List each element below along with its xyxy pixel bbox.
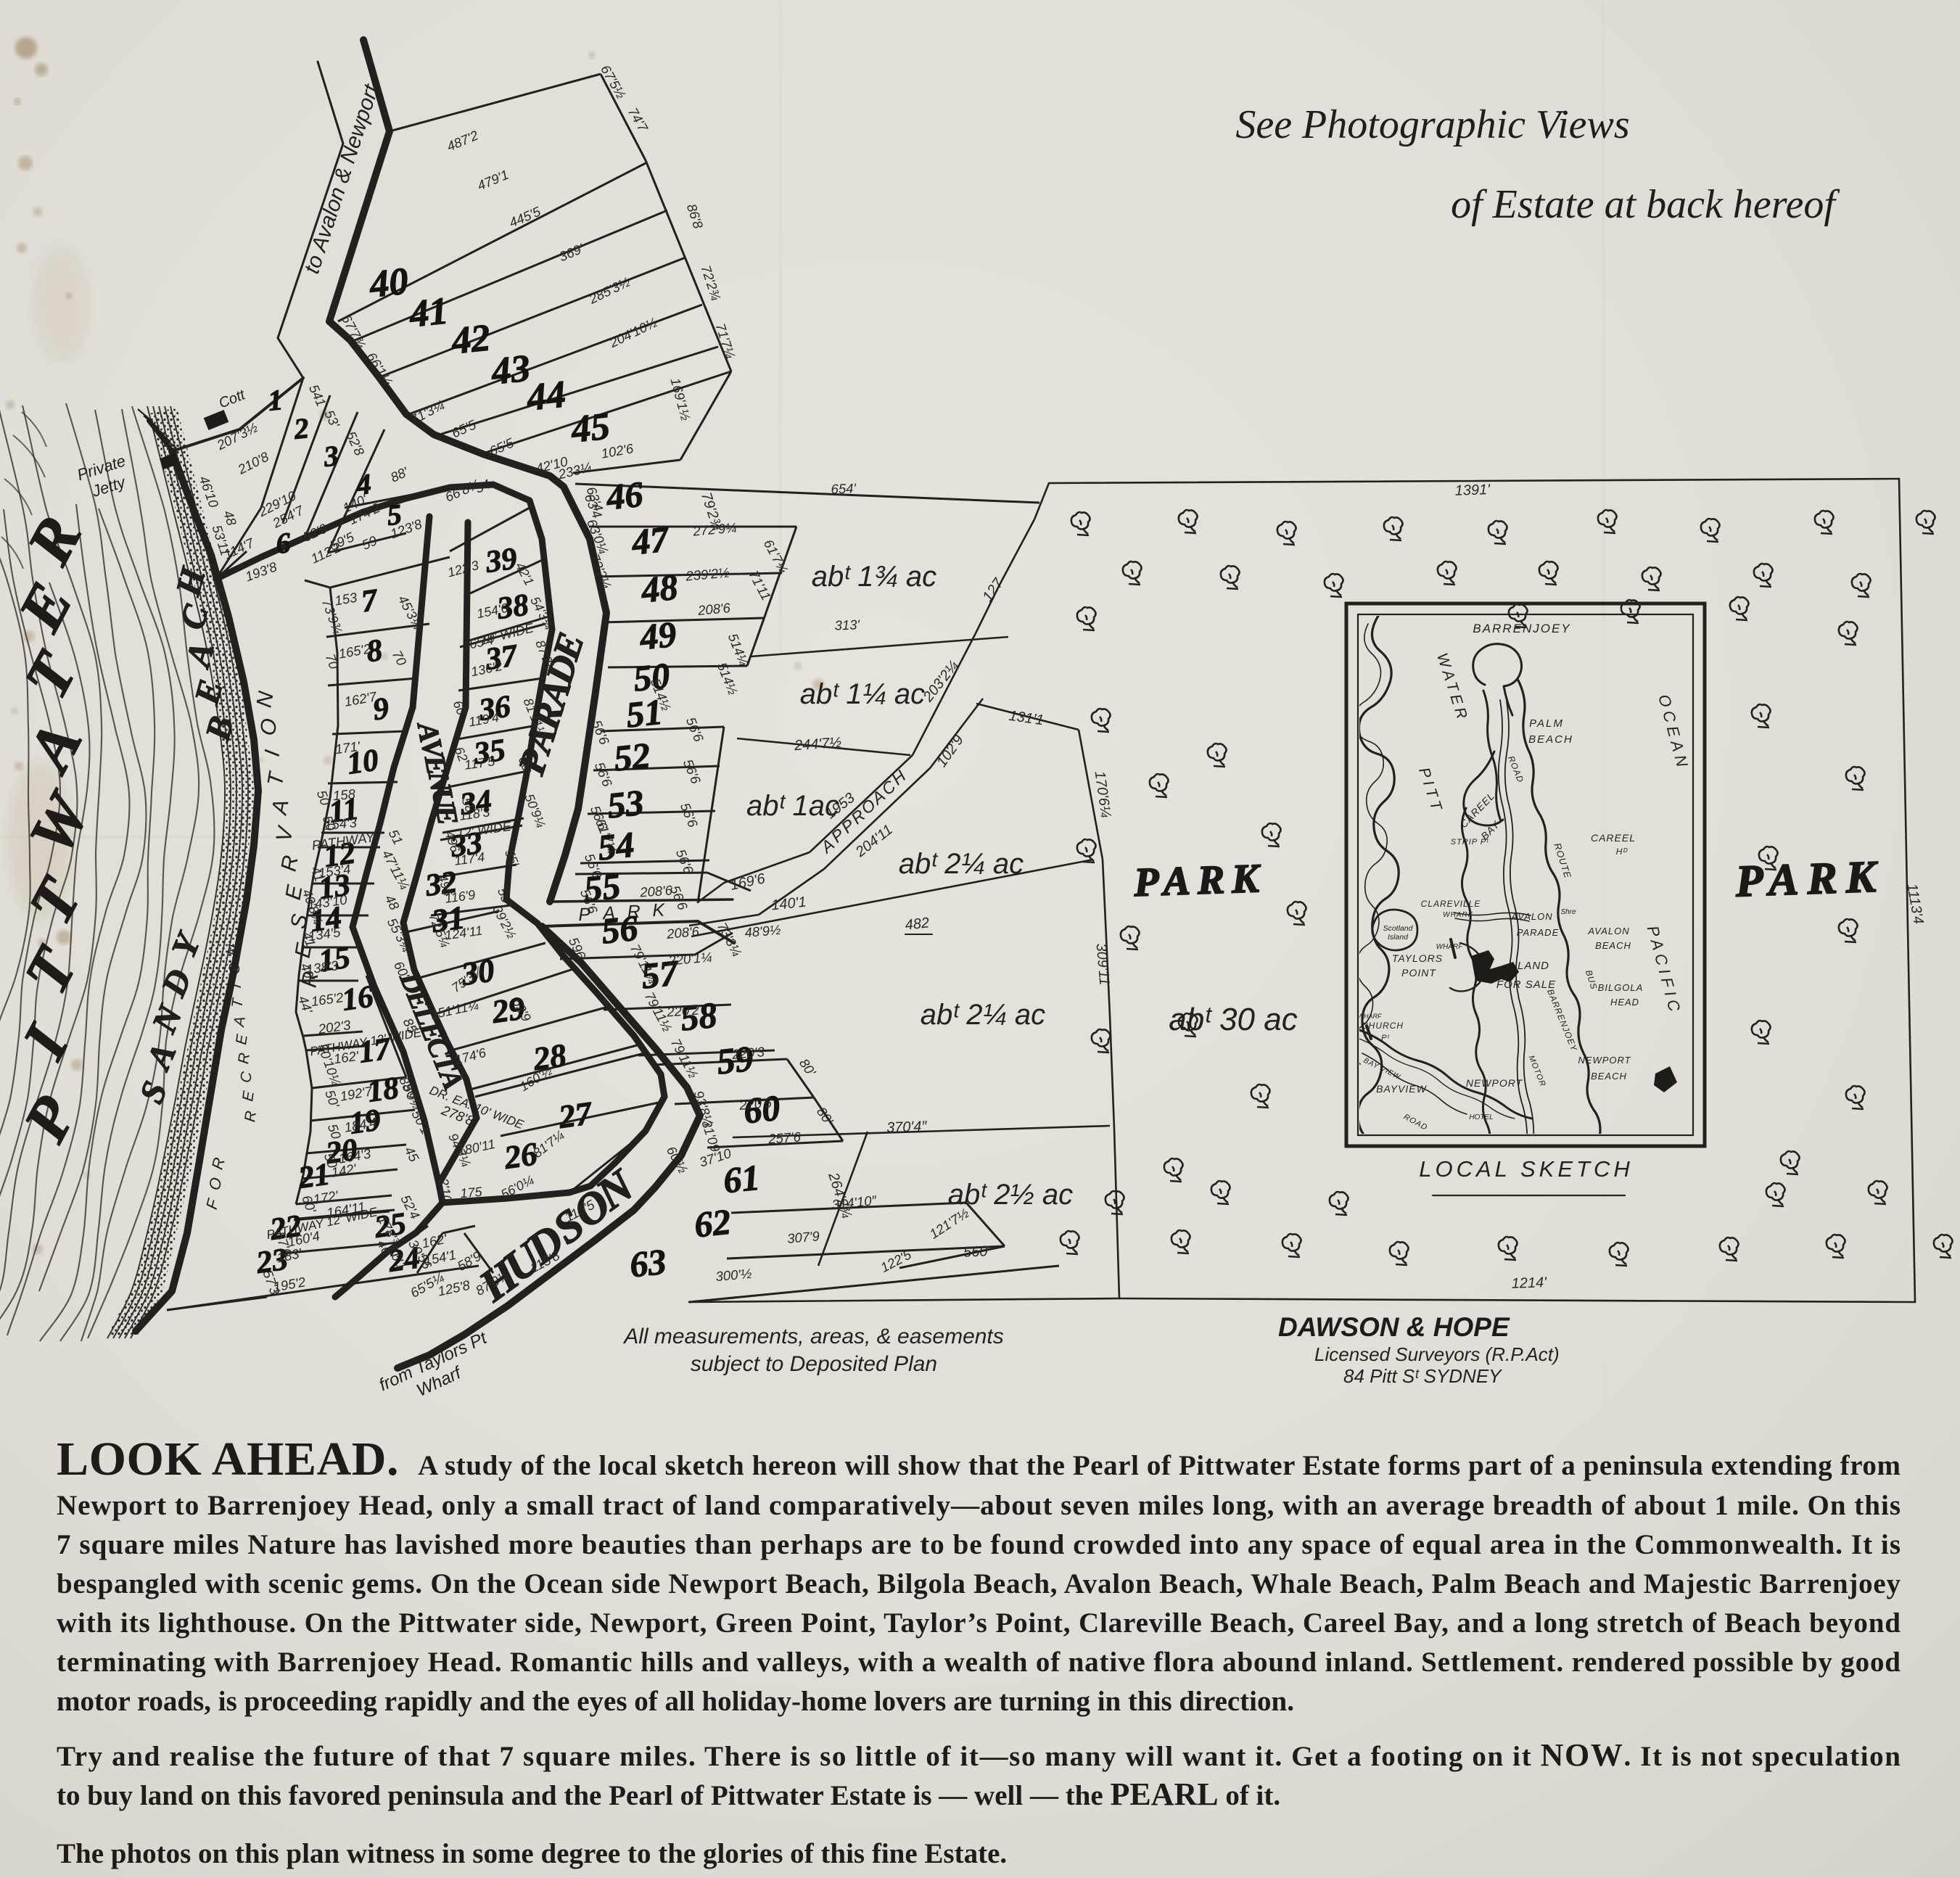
svg-text:See Photographic Views: See Photographic Views	[1235, 102, 1629, 147]
svg-text:bespangled with scenic gems.: bespangled with scenic gems. On the Ocea…	[57, 1568, 1901, 1599]
svg-text:Hᴰ: Hᴰ	[1616, 847, 1628, 857]
svg-text:FOR SALE: FOR SALE	[1496, 979, 1556, 991]
svg-text:terminating with Barrenjoey He: terminating with Barrenjoey Head. Romant…	[57, 1647, 1901, 1678]
svg-text:CAREEL: CAREEL	[1591, 832, 1636, 844]
svg-text:PARK: PARK	[1132, 856, 1267, 905]
svg-text:to buy land on this favored pe: to buy land on this favored peninsula an…	[57, 1776, 1280, 1812]
svg-text:654': 654'	[831, 480, 857, 496]
svg-text:53: 53	[605, 782, 646, 826]
svg-text:84 Pitt Sᵗ SYDNEY: 84 Pitt Sᵗ SYDNEY	[1343, 1365, 1502, 1387]
svg-text:HEAD: HEAD	[1610, 997, 1639, 1008]
svg-text:of Estate at back hereof: of Estate at back hereof	[1451, 182, 1840, 227]
svg-text:48: 48	[638, 567, 680, 611]
svg-text:TAYLORS: TAYLORS	[1392, 952, 1443, 964]
svg-text:LAND: LAND	[1518, 960, 1549, 972]
svg-text:O: O	[226, 961, 244, 975]
svg-text:subject to Deposited Plan: subject to Deposited Plan	[691, 1352, 937, 1376]
svg-text:All measurements, areas, & eas: All measurements, areas, & easements	[622, 1325, 1004, 1348]
svg-text:R: R	[235, 1052, 253, 1065]
svg-text:175: 175	[460, 1185, 484, 1201]
svg-text:1214': 1214'	[1511, 1274, 1547, 1292]
svg-text:WHARF: WHARF	[1436, 943, 1464, 951]
svg-text:208'6: 208'6	[639, 882, 674, 899]
svg-text:7 square miles Nature has lavi: 7 square miles Nature has lavished more …	[57, 1529, 1901, 1560]
svg-text:BARRENJOEY: BARRENJOEY	[1473, 622, 1570, 635]
svg-text:The photos on this plan witnes: The photos on this plan witness in some …	[57, 1838, 1007, 1869]
svg-text:220'5: 220'5	[738, 1095, 773, 1113]
svg-text:560: 560	[963, 1243, 988, 1260]
svg-text:61: 61	[721, 1157, 762, 1201]
svg-text:220'2: 220'2	[666, 1002, 701, 1019]
svg-text:52: 52	[612, 735, 652, 779]
svg-text:Scotland: Scotland	[1383, 924, 1414, 933]
svg-text:26: 26	[501, 1135, 540, 1176]
svg-text:abᵗ 1¼ ac: abᵗ 1¼ ac	[800, 678, 925, 710]
svg-text:482: 482	[905, 915, 930, 933]
svg-text:158: 158	[332, 786, 356, 804]
svg-text:BEACH: BEACH	[1595, 940, 1631, 951]
svg-text:PARK: PARK	[1734, 852, 1886, 906]
svg-text:motor roads, is proceeding rap: motor roads, is proceeding rapidly and t…	[57, 1686, 1294, 1717]
svg-text:42: 42	[449, 316, 493, 362]
svg-text:47: 47	[629, 518, 672, 562]
svg-text:Pᵗ: Pᵗ	[1381, 1034, 1390, 1042]
svg-text:BEACH: BEACH	[1591, 1071, 1627, 1082]
svg-text:Island: Island	[1388, 933, 1409, 942]
svg-text:abᵗ 2¼ ac: abᵗ 2¼ ac	[921, 999, 1045, 1031]
svg-text:44: 44	[524, 373, 568, 419]
svg-text:1391': 1391'	[1454, 482, 1491, 499]
svg-text:208'6: 208'6	[665, 923, 700, 942]
svg-text:370'4″: 370'4″	[886, 1119, 928, 1136]
svg-text:45: 45	[569, 405, 612, 450]
svg-text:WHARF: WHARF	[1443, 911, 1473, 919]
svg-text:LOCAL SKETCH: LOCAL SKETCH	[1419, 1156, 1633, 1182]
svg-text:abᵗ 2¼ ac: abᵗ 2¼ ac	[899, 848, 1024, 880]
svg-text:244'7½: 244'7½	[793, 735, 842, 754]
svg-text:40: 40	[367, 260, 411, 305]
svg-text:DAWSON & HOPE: DAWSON & HOPE	[1278, 1312, 1510, 1342]
svg-text:K: K	[652, 900, 666, 921]
svg-text:NEWPORT: NEWPORT	[1466, 1077, 1523, 1089]
svg-text:BEACH: BEACH	[1528, 733, 1573, 746]
svg-text:313': 313'	[834, 617, 861, 633]
svg-text:208'6: 208'6	[696, 600, 731, 618]
svg-text:NEWPORT: NEWPORT	[1578, 1055, 1631, 1066]
svg-text:abᵗ 2½ ac: abᵗ 2½ ac	[948, 1179, 1073, 1211]
svg-text:257'6: 257'6	[767, 1129, 802, 1146]
svg-text:WHARF: WHARF	[1358, 1013, 1382, 1020]
svg-text:Licensed Surveyors (R.P.Act): Licensed Surveyors (R.P.Act)	[1314, 1343, 1560, 1365]
svg-text:Shre: Shre	[1560, 908, 1576, 916]
svg-text:CHURCH: CHURCH	[1362, 1021, 1404, 1031]
svg-text:abᵗ 1ac: abᵗ 1ac	[746, 790, 839, 822]
svg-text:62: 62	[692, 1201, 733, 1245]
svg-text:BILGOLA: BILGOLA	[1598, 982, 1644, 993]
svg-text:46: 46	[604, 474, 645, 518]
svg-text:STRIP Pᵗ: STRIP Pᵗ	[1451, 838, 1489, 847]
svg-text:220'3: 220'3	[730, 1044, 765, 1062]
svg-text:CLAREVILLE: CLAREVILLE	[1421, 899, 1481, 909]
svg-text:Newport to Barrenjoey Head, on: Newport to Barrenjoey Head, only a small…	[57, 1490, 1901, 1521]
svg-text:POINT: POINT	[1401, 967, 1436, 979]
svg-text:63: 63	[627, 1241, 668, 1285]
svg-text:41: 41	[407, 289, 450, 335]
svg-text:PALM: PALM	[1529, 717, 1564, 730]
svg-text:BAYVIEW: BAYVIEW	[1376, 1083, 1428, 1095]
svg-text:39: 39	[483, 541, 519, 580]
svg-text:AVALON: AVALON	[1510, 911, 1552, 922]
svg-text:HOTEL: HOTEL	[1469, 1113, 1493, 1121]
svg-text:R: R	[242, 1110, 260, 1123]
svg-text:307'9: 307'9	[786, 1228, 820, 1246]
svg-text:with its lighthouse. On the P: with its lighthouse. On the Pittwater si…	[57, 1607, 1901, 1639]
svg-text:49: 49	[637, 614, 678, 658]
svg-text:27: 27	[556, 1095, 595, 1135]
svg-text:PARADE: PARADE	[1517, 927, 1560, 938]
svg-text:AVALON: AVALON	[1587, 926, 1629, 936]
svg-text:abᵗ 1¾ ac: abᵗ 1¾ ac	[812, 561, 936, 593]
svg-text:abᵗ 30 ac: abᵗ 30 ac	[1169, 1002, 1297, 1037]
svg-text:300'½: 300'½	[715, 1266, 752, 1284]
